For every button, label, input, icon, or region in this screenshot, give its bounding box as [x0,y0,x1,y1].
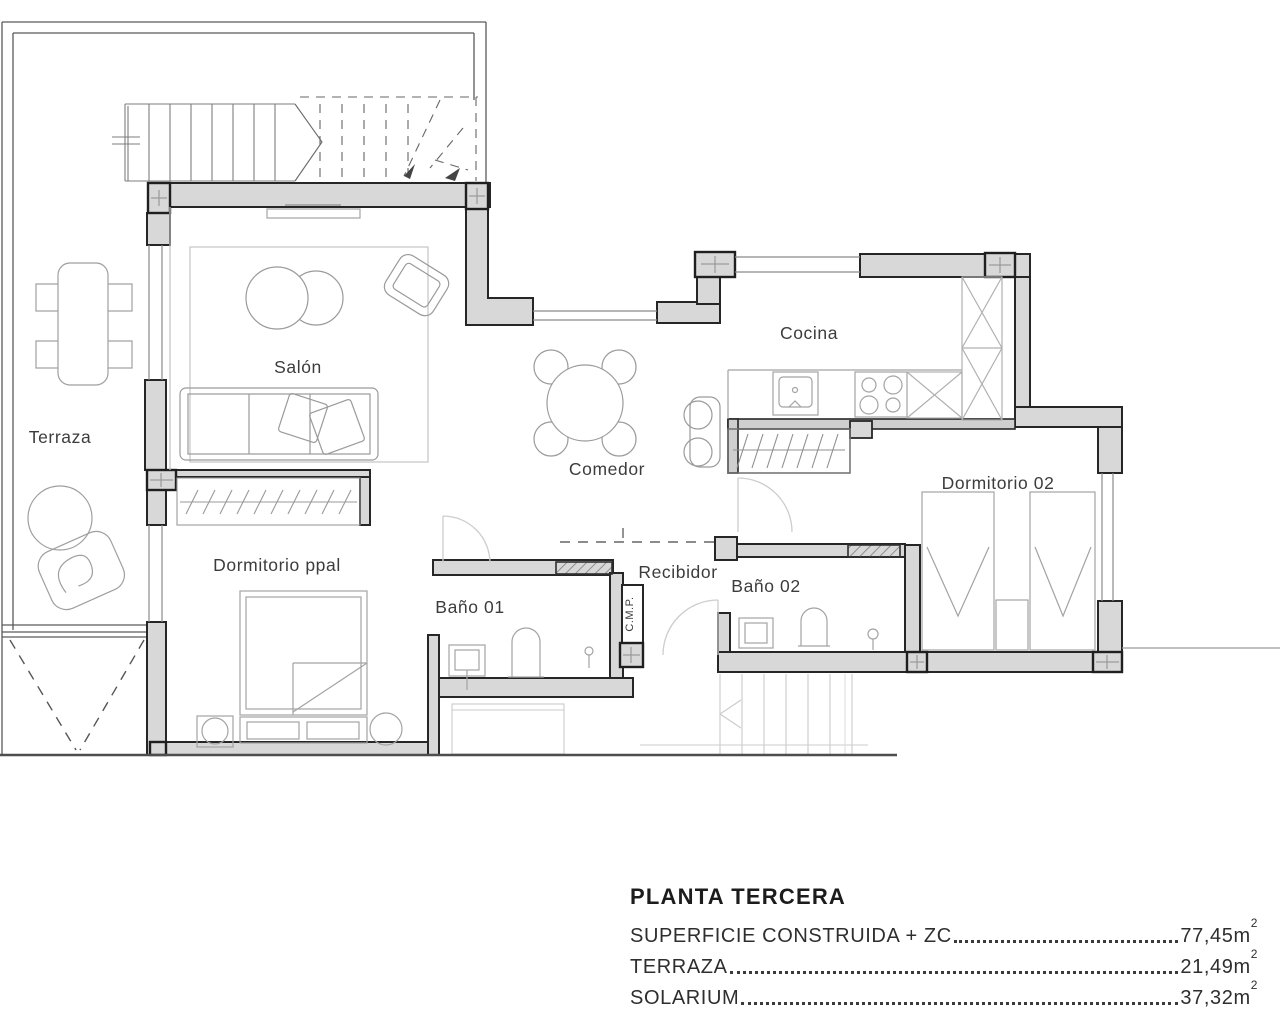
label-dormitorio-ppal: Dormitorio ppal [213,555,341,575]
bed-double [197,591,402,747]
area-label: TERRAZA [630,956,728,979]
bed-single-1 [922,492,994,650]
kitchen-sink [773,372,818,415]
area-summary: PLANTA TERCERA SUPERFICIE CONSTRUIDA + Z… [630,884,1258,1010]
label-salon: Salón [274,357,322,377]
terrace-table-set [36,263,132,385]
floor-plan-page: { "plan": { "rooms": { "terraza": {"labe… [0,0,1280,1024]
dot-leader [730,971,1179,974]
label-terraza: Terraza [29,427,92,447]
label-comedor: Comedor [569,459,645,479]
area-exponent: 2 [1251,978,1258,992]
threshold-dashed [560,528,715,542]
area-value: 21,49m2 [1180,956,1258,979]
sofa [180,388,378,460]
label-cmp: C.M.P. [624,596,636,631]
coffee-tables [246,267,343,329]
area-row-terraza: TERRAZA 21,49m2 [630,948,1258,979]
cooktop [855,372,907,417]
wardrobe-ppal [177,478,360,525]
area-value: 77,45m2 [1180,925,1258,948]
void-dashed-v [10,640,144,750]
dining-set [534,350,636,456]
stair-direction-arrow [404,164,415,179]
bed-single-2 [1030,492,1095,650]
label-dormitorio-02: Dormitorio 02 [942,473,1055,493]
dot-leader [741,1002,1178,1005]
area-row-superficie: SUPERFICIE CONSTRUIDA + ZC 77,45m2 [630,917,1258,948]
label-recibidor: Recibidor [638,562,717,582]
dot-leader [954,940,1179,943]
cabinet-x [907,372,962,418]
armchair [381,251,453,320]
bano02-fixtures [739,608,878,650]
salon-furniture [180,205,452,462]
area-exponent: 2 [1251,916,1258,930]
nightstand [996,600,1028,650]
area-value: 37,32m2 [1180,987,1258,1010]
area-exponent: 2 [1251,947,1258,961]
terrace-lounge [28,486,130,615]
label-bano-01: Baño 01 [435,597,504,617]
label-bano-02: Baño 02 [731,576,800,596]
sofa-pillows [278,393,365,455]
plan-title: PLANTA TERCERA [630,884,1258,910]
beds-dorm02 [922,492,1095,650]
dining-table [547,365,623,441]
bar-stools [684,397,720,467]
label-cocina: Cocina [780,323,838,343]
tall-cabinet [962,277,1002,420]
area-row-solarium: SOLARIUM 37,32m2 [630,979,1258,1010]
floor-plan-drawing: Terraza Salón Comedor Cocina Dormitorio … [0,0,1280,1024]
staircase [112,97,478,181]
area-label: SUPERFICIE CONSTRUIDA + ZC [630,925,952,948]
area-label: SOLARIUM [630,987,739,1010]
hall-closet [728,429,850,473]
